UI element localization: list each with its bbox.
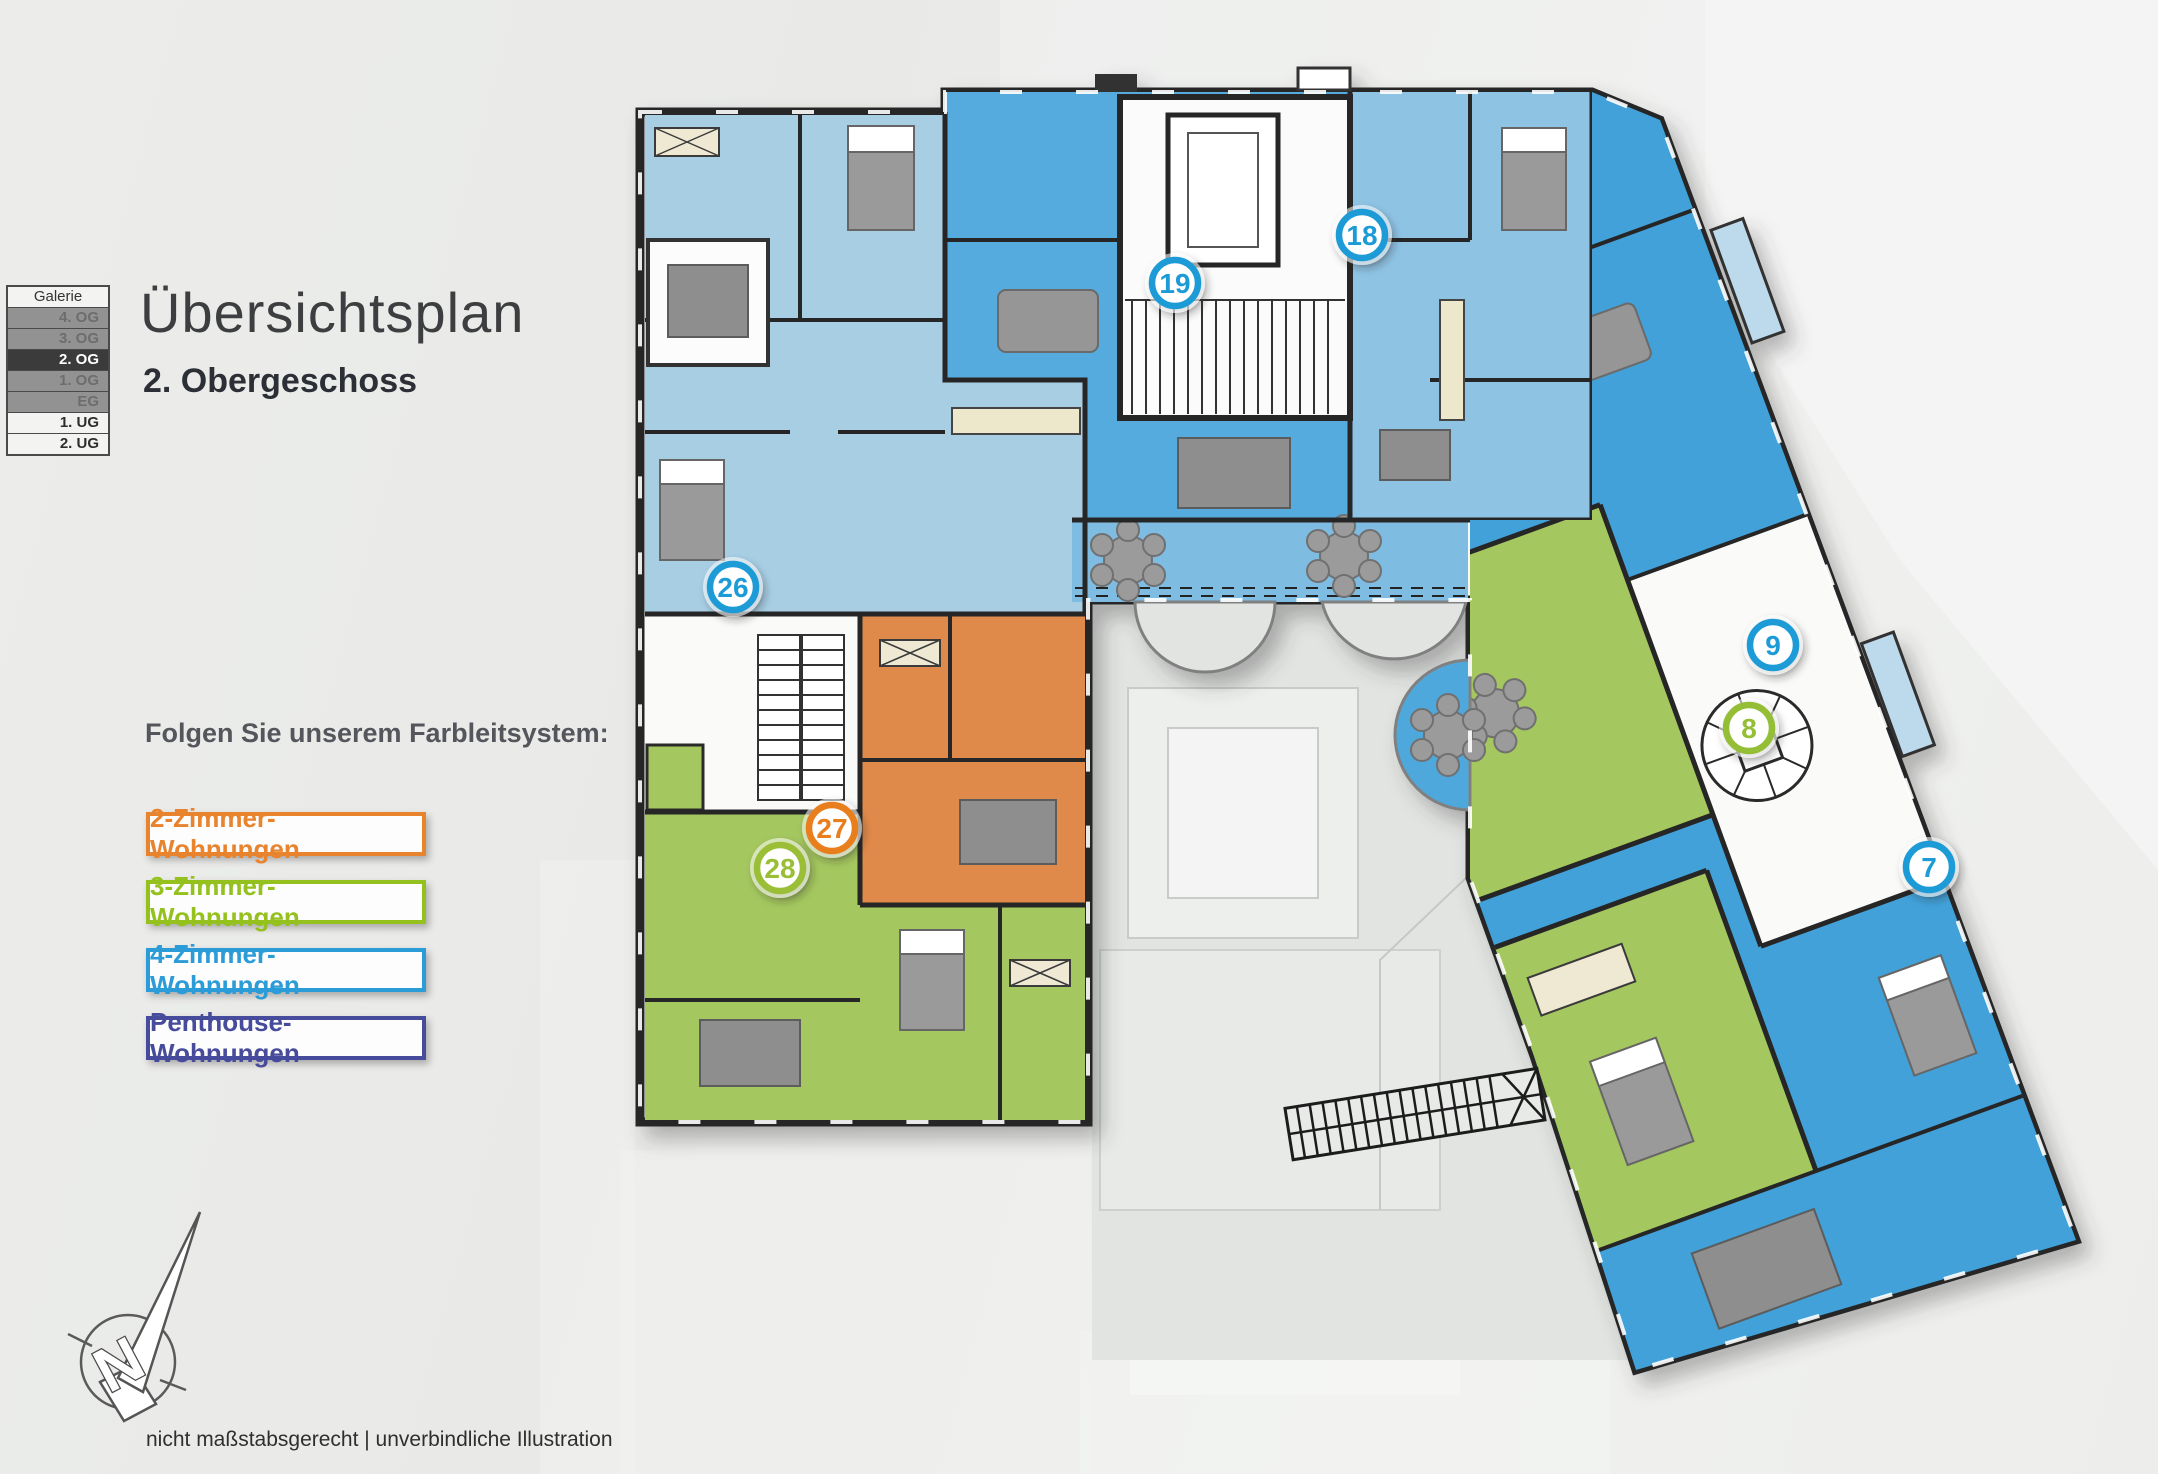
stairwell-central [1120, 97, 1350, 418]
svg-text:8: 8 [1741, 713, 1757, 744]
floor-item-4-og[interactable]: 4. OG [8, 308, 108, 329]
legend-item-3[interactable]: 4-Zimmer-Wohnungen [146, 948, 426, 992]
svg-text:27: 27 [816, 813, 847, 844]
unit-badge-18[interactable]: 18 [1332, 205, 1392, 265]
unit-badge-19[interactable]: 19 [1145, 253, 1205, 313]
floor-item-3-og[interactable]: 3. OG [8, 329, 108, 350]
legend-item-2[interactable]: 3-Zimmer-Wohnungen [146, 880, 426, 924]
svg-text:18: 18 [1346, 220, 1377, 251]
floor-selector: Galerie4. OG3. OG2. OG1. OGEG1. UG2. UG [6, 285, 110, 456]
floor-item-eg[interactable]: EG [8, 392, 108, 413]
footnote: nicht maßstabsgerecht | unverbindliche I… [146, 1428, 613, 1452]
floor-item-1-ug[interactable]: 1. UG [8, 413, 108, 434]
svg-text:7: 7 [1921, 852, 1937, 883]
unit-badge-27[interactable]: 27 [802, 798, 862, 858]
svg-text:19: 19 [1159, 268, 1190, 299]
floor-item-1-og[interactable]: 1. OG [8, 371, 108, 392]
page-background: N 7891819262728 Galerie4. OG3. OG2. OG1.… [0, 0, 2158, 1474]
unit-badge-9[interactable]: 9 [1743, 615, 1803, 675]
svg-text:28: 28 [764, 853, 795, 884]
legend-intro: Folgen Sie unserem Farbleitsystem: [145, 718, 609, 749]
legend-item-1[interactable]: 2-Zimmer-Wohnungen [146, 812, 426, 856]
compass: N [68, 1212, 200, 1421]
floor-item-2-og[interactable]: 2. OG [8, 350, 108, 371]
floor-item-galerie[interactable]: Galerie [8, 287, 108, 308]
unit-badge-26[interactable]: 26 [703, 557, 763, 617]
svg-text:9: 9 [1765, 630, 1781, 661]
page-title: Übersichtsplan [140, 280, 524, 345]
unit-badge-8[interactable]: 8 [1719, 698, 1779, 758]
floor-item-2-ug[interactable]: 2. UG [8, 434, 108, 454]
page-subtitle: 2. Obergeschoss [143, 362, 417, 401]
unit-badge-7[interactable]: 7 [1899, 837, 1959, 897]
legend-item-4[interactable]: Penthouse-Wohnungen [146, 1016, 426, 1060]
unit-badge-28[interactable]: 28 [750, 838, 810, 898]
stairs-west [758, 635, 844, 800]
svg-text:26: 26 [717, 572, 748, 603]
